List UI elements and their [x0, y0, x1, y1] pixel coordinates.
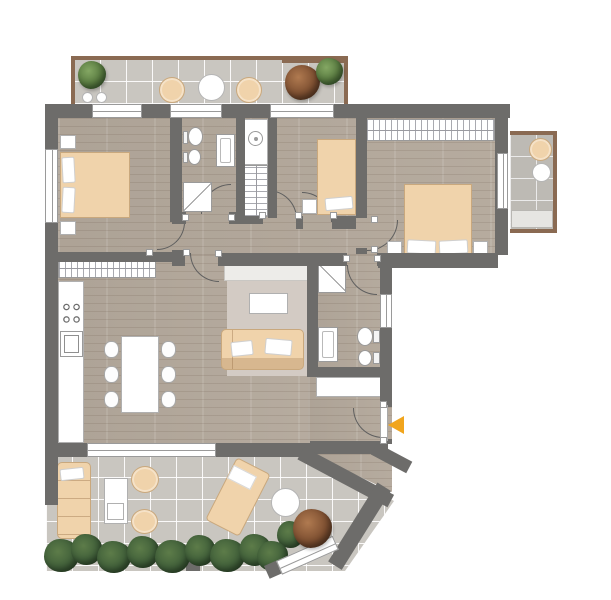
dining-chair	[104, 341, 119, 358]
dining-chair	[104, 391, 119, 408]
jamb	[371, 216, 378, 223]
balcony-candle	[96, 92, 107, 103]
bed1-nightstand	[60, 135, 76, 149]
bed1-nightstand	[60, 221, 76, 235]
balcony-chair	[236, 77, 262, 103]
terrace-table-tray	[107, 503, 124, 520]
balcony-rail-right	[344, 56, 348, 104]
bath1-sink	[216, 134, 235, 167]
wall-closet-right	[268, 118, 277, 218]
balcony2-planter	[511, 210, 553, 228]
bath2-bidet-bowl	[358, 350, 372, 366]
window-left-bed1	[45, 149, 58, 223]
balcony-chair	[159, 77, 185, 103]
balcony-table	[198, 74, 225, 101]
wall-bed1-right	[170, 118, 182, 222]
balcony-candle	[82, 92, 93, 103]
wall-bath2-bottom	[307, 367, 392, 377]
hedge-bush	[155, 540, 190, 573]
dining-table	[121, 336, 159, 413]
jamb	[215, 250, 222, 257]
jamb	[182, 214, 189, 221]
balcony2-rail-bottom	[510, 229, 557, 233]
dining-chair	[161, 341, 176, 358]
bath2-shower	[318, 262, 346, 293]
bed1-pillow	[61, 157, 75, 184]
bath1-toilet-bowl	[188, 127, 203, 146]
window-top-bath1	[170, 104, 222, 118]
wall-bath1-right	[236, 118, 245, 224]
wall-living-top	[218, 253, 347, 266]
window-top-bed2	[270, 104, 334, 118]
balcony2-rail-right	[553, 131, 557, 233]
jamb	[259, 212, 266, 219]
bath1-bidet-bowl	[188, 149, 201, 165]
living-sideboard	[224, 264, 310, 281]
sofa-cushion	[264, 338, 292, 356]
jamb	[295, 212, 302, 219]
balcony2-rail-top	[510, 131, 557, 135]
closet-rack	[243, 165, 268, 217]
jamb	[183, 249, 190, 256]
dining-chair	[161, 366, 176, 383]
window-bath2	[380, 294, 392, 328]
dining-chair	[161, 391, 176, 408]
floor-plan-canvas	[0, 0, 611, 600]
jamb	[380, 401, 387, 408]
terrace-sofa-pillow	[59, 467, 84, 481]
dining-chair	[104, 366, 119, 383]
closet-washing-machine	[248, 131, 263, 146]
terrace-chair	[131, 466, 159, 493]
hall-closet	[316, 377, 382, 397]
sofa-cushion	[230, 340, 253, 357]
terrace-round-table	[271, 488, 300, 517]
bed3-wardrobe	[366, 119, 495, 141]
jamb	[228, 214, 235, 221]
bath2-bidet-tank	[373, 352, 380, 364]
bed2-pillow	[324, 196, 353, 211]
jamb	[374, 255, 381, 262]
entrance-arrow	[388, 416, 404, 434]
entrance-door-leaf	[380, 405, 388, 441]
kitchen-sink	[60, 331, 83, 357]
wall-bed2-bed3	[356, 118, 367, 218]
window-top-bed1	[92, 104, 142, 118]
bed1-pillow	[61, 187, 75, 214]
bath1-shower	[183, 182, 212, 212]
jamb	[343, 255, 350, 262]
bath2-toilet-tank	[373, 330, 380, 343]
jamb	[146, 249, 153, 256]
balcony-rail-left	[71, 56, 75, 104]
bed2-nightstand	[302, 199, 317, 214]
jamb	[371, 246, 378, 253]
kitchen-stove	[60, 300, 83, 327]
jamb	[380, 437, 387, 444]
wall-bath2-left	[307, 263, 318, 375]
jamb	[330, 212, 337, 219]
living-coffee-table	[249, 293, 288, 314]
wall-bed3-post	[356, 248, 367, 254]
terrace-chair	[131, 509, 158, 534]
balcony2-chair	[529, 138, 552, 161]
hedge-bush	[127, 536, 159, 568]
balcony2-table	[532, 163, 551, 182]
bath2-sink	[318, 327, 338, 362]
hedge-bush	[97, 541, 131, 573]
window-bed3-balcony	[497, 153, 508, 209]
window-living-terrace	[87, 443, 216, 457]
wall-bed3-bottom	[378, 253, 498, 268]
bath2-toilet-bowl	[357, 327, 373, 346]
